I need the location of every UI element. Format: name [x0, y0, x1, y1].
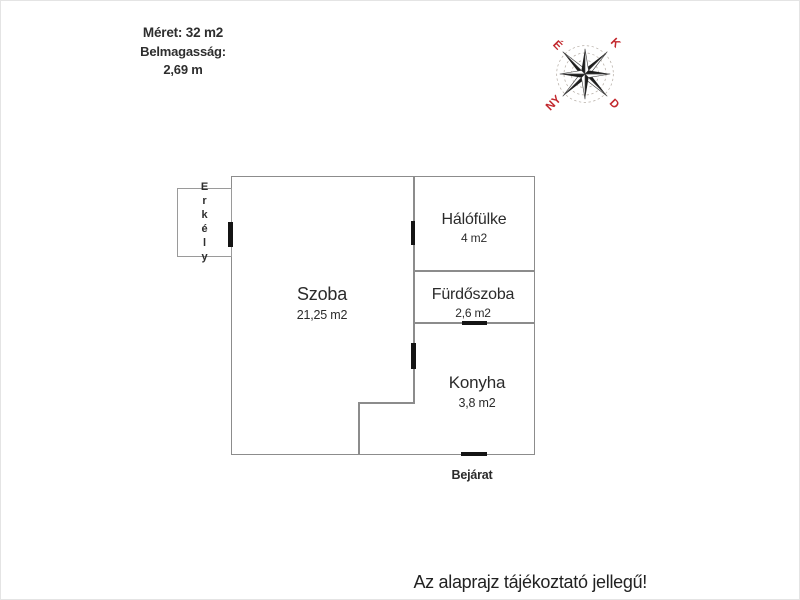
compass-east-label: K [608, 36, 623, 51]
room-furdoszoba: Fürdőszoba 2,6 m2 [432, 286, 515, 320]
room-konyha-name: Konyha [449, 373, 505, 393]
room-furdoszoba-area: 2,6 m2 [432, 306, 515, 320]
wall-notch-vertical [358, 402, 360, 455]
compass-rose-icon: É K NY D [543, 32, 627, 116]
entrance-label: Bejárat [452, 468, 493, 482]
room-szoba-name: Szoba [297, 284, 348, 305]
balcony-door-marker [228, 222, 233, 247]
apartment-meta: Méret: 32 m2 Belmagasság: 2,69 m [108, 24, 258, 79]
disclaimer-text: Az alaprajz tájékoztató jellegű! [413, 572, 647, 593]
room-konyha: Konyha 3,8 m2 [449, 373, 505, 410]
entrance-door-marker [461, 452, 487, 456]
room-furdoszoba-name: Fürdőszoba [432, 286, 515, 304]
size-label: Méret: 32 m2 [108, 24, 258, 43]
wall-notch-horizontal [358, 402, 415, 404]
konyha-door-marker [411, 343, 416, 369]
room-szoba: Szoba 21,25 m2 [297, 284, 348, 322]
balcony-label: Erkély [199, 181, 211, 265]
room-szoba-area: 21,25 m2 [297, 308, 348, 322]
halofulke-door-marker [411, 221, 416, 245]
compass-west-label: NY [544, 93, 564, 113]
room-konyha-area: 3,8 m2 [449, 396, 505, 410]
ceiling-height-value: 2,69 m [108, 61, 258, 79]
floorplan-page: Méret: 32 m2 Belmagasság: 2,69 m [0, 0, 800, 600]
compass-south-label: D [607, 97, 621, 111]
compass-north-label: É [550, 38, 565, 53]
room-halofulke-name: Hálófülke [442, 211, 507, 229]
room-halofulke-area: 4 m2 [442, 231, 507, 245]
furdoszoba-door-marker [462, 321, 487, 325]
ceiling-height-label: Belmagasság: [108, 43, 258, 61]
wall-halofulke-furdoszoba [413, 270, 535, 272]
room-halofulke: Hálófülke 4 m2 [442, 211, 507, 245]
balcony-room: Erkély [177, 188, 232, 257]
